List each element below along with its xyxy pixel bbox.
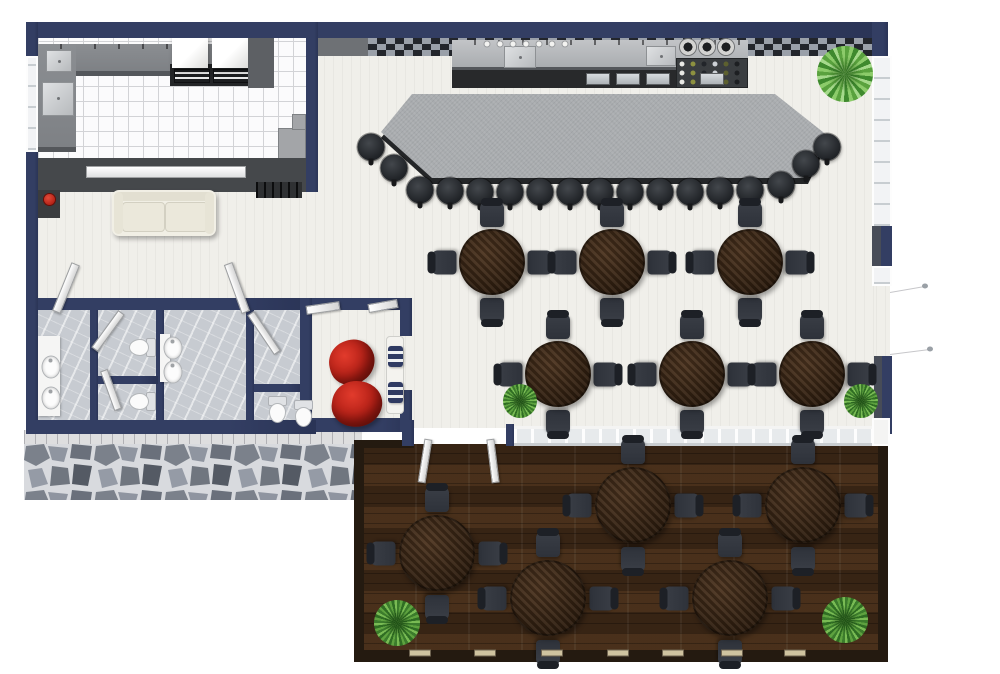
kitchen-left-window [26, 56, 38, 152]
bar-sink-right [646, 46, 676, 66]
dining-chair[interactable] [737, 494, 762, 518]
toilet[interactable] [293, 400, 313, 426]
dining-chair[interactable] [680, 314, 704, 339]
cooler-glass-door [616, 73, 640, 85]
palm-plant[interactable] [817, 46, 873, 102]
stone-path [24, 444, 360, 500]
dining-chair[interactable] [786, 251, 811, 275]
bush-plant[interactable] [374, 600, 420, 646]
dining-chair[interactable] [648, 251, 673, 275]
toilet-bowl [269, 403, 286, 423]
dining-chair[interactable] [482, 587, 507, 611]
dining-table[interactable] [557, 207, 667, 317]
bar-counter[interactable] [378, 92, 830, 180]
bar-stool[interactable] [381, 155, 408, 182]
toilet[interactable] [130, 337, 156, 357]
round-table-top [717, 229, 783, 295]
dining-chair[interactable] [680, 410, 704, 435]
bar-stool[interactable] [768, 172, 795, 199]
bottle [713, 62, 718, 67]
bar-glass [537, 42, 542, 47]
dining-chair[interactable] [690, 251, 715, 275]
dining-chair[interactable] [546, 410, 570, 435]
cooler-glass-door [700, 73, 724, 85]
toilet-bowl [295, 407, 312, 427]
fence-post-cap [474, 650, 496, 657]
bottle [724, 80, 729, 85]
bush-plant[interactable] [822, 597, 868, 643]
dining-chair[interactable] [552, 251, 577, 275]
bar-sink-left [504, 46, 536, 68]
lounge-sofa[interactable] [112, 190, 216, 236]
oven-door-left [174, 69, 210, 83]
dining-chair[interactable] [791, 439, 815, 464]
bar-glass [498, 42, 503, 47]
patio-table[interactable] [578, 450, 688, 560]
dining-chair[interactable] [567, 494, 592, 518]
right-window-upper [872, 56, 892, 228]
bottle [691, 62, 696, 67]
toilet[interactable] [130, 391, 156, 411]
cooler-glass-door [646, 73, 670, 85]
restroom-divider-1 [90, 310, 98, 422]
restroom-sink[interactable] [42, 387, 61, 410]
round-table-top [459, 229, 525, 295]
kitchen-right-wall [306, 22, 318, 192]
patio-table[interactable] [382, 498, 492, 608]
sofa-cushion-left [122, 202, 165, 232]
dining-chair[interactable] [738, 202, 762, 227]
round-table-top [659, 341, 725, 407]
bar-glass [485, 42, 490, 47]
bottle [702, 62, 707, 67]
restroom-divider-3 [246, 310, 254, 422]
dining-chair[interactable] [675, 494, 700, 518]
fire-extinguisher [44, 194, 55, 205]
bar-glass [563, 42, 568, 47]
bar-stool[interactable] [814, 134, 841, 161]
oven-door-right [213, 69, 249, 83]
bottle [680, 62, 685, 67]
round-table-top [579, 229, 645, 295]
undercounter-coolers [452, 70, 676, 88]
patio-fence-right [878, 440, 888, 662]
dining-chair[interactable] [432, 251, 457, 275]
bar-stool[interactable] [707, 178, 734, 205]
entrance-floor-band [876, 286, 890, 356]
bottle [691, 71, 696, 76]
sofa-arm-left [114, 192, 123, 234]
dining-chair[interactable] [845, 494, 870, 518]
sofa-cushion-right [165, 202, 208, 232]
dining-chair[interactable] [791, 547, 815, 572]
bottle [724, 62, 729, 67]
kitchen-counter-end [248, 36, 274, 88]
patio-fence-left [354, 440, 364, 662]
heater-vent [256, 182, 302, 198]
entry-right-wall-upper [400, 298, 412, 336]
window-wall-corner [872, 418, 890, 446]
fence-post-cap [662, 650, 684, 657]
stove-burner [680, 39, 696, 55]
dining-chair[interactable] [536, 532, 560, 557]
door-swing-line [890, 349, 930, 355]
bench-pillow-bottom [388, 382, 403, 403]
kitchen-corner-counter-step [292, 114, 306, 130]
bottle [680, 71, 685, 76]
restroom-top-wall [34, 298, 312, 310]
dining-chair[interactable] [800, 314, 824, 339]
serving-hatch [86, 166, 246, 178]
stove-burner [718, 39, 734, 55]
door-handle [922, 284, 928, 289]
bar-stool[interactable] [358, 134, 385, 161]
bar-glass [550, 42, 555, 47]
right-wall-top [872, 22, 888, 60]
bench-pillow-top [388, 346, 403, 367]
cooler-glass-door [586, 73, 610, 85]
bar-stool[interactable] [407, 177, 434, 204]
dining-chair[interactable] [632, 363, 657, 387]
bar-stool[interactable] [437, 178, 464, 205]
restroom-bottom-wall [26, 420, 316, 434]
toilet-bowl [129, 339, 149, 356]
bar-stool[interactable] [647, 179, 674, 206]
fence-post-cap [607, 650, 629, 657]
bottle [724, 71, 729, 76]
dining-chair[interactable] [480, 298, 504, 323]
dining-table[interactable] [695, 207, 805, 317]
bar-stool[interactable] [557, 179, 584, 206]
dining-chair[interactable] [425, 595, 449, 620]
bush-plant[interactable] [844, 384, 878, 418]
dining-chair[interactable] [621, 547, 645, 572]
door-swing-line [890, 286, 925, 293]
restroom-stub-wall-2 [254, 384, 302, 392]
bottle [735, 80, 740, 85]
dining-chair[interactable] [800, 410, 824, 435]
dining-chair[interactable] [480, 202, 504, 227]
bottle [735, 71, 740, 76]
round-table-top [510, 560, 586, 636]
restroom-sink[interactable] [164, 337, 183, 360]
fence-post-cap [721, 650, 743, 657]
bush-plant[interactable] [503, 384, 537, 418]
round-table-top [399, 515, 475, 591]
floor-plan [0, 0, 1000, 674]
dining-chair[interactable] [590, 587, 615, 611]
bar-glass [524, 42, 529, 47]
restroom-sink[interactable] [164, 361, 183, 384]
kitchen-sink-large [42, 82, 74, 116]
top-wall [26, 22, 888, 38]
fence-post-cap [541, 650, 563, 657]
bar-stool[interactable] [677, 179, 704, 206]
fence-post-cap [784, 650, 806, 657]
dining-table[interactable] [437, 207, 547, 317]
toilet-bowl [129, 393, 149, 410]
patio-table[interactable] [748, 450, 858, 560]
dining-chair[interactable] [718, 532, 742, 557]
dining-chair[interactable] [600, 202, 624, 227]
dining-table[interactable] [637, 319, 747, 429]
dining-chair[interactable] [371, 542, 396, 566]
round-table-top [765, 467, 841, 543]
bar-stool[interactable] [527, 179, 554, 206]
door-handle [927, 347, 933, 352]
bar-glass [511, 42, 516, 47]
sofa-arm-right [205, 192, 214, 234]
round-table-top [779, 341, 845, 407]
toilet[interactable] [267, 396, 287, 422]
bottle [691, 80, 696, 85]
round-table-top [692, 560, 768, 636]
kitchen-corner-counter [278, 128, 306, 162]
right-window-small [872, 266, 892, 286]
dining-chair[interactable] [498, 363, 523, 387]
bottle [680, 80, 685, 85]
patio-door-jamb-left [402, 420, 414, 446]
dining-chair[interactable] [425, 487, 449, 512]
dining-chair[interactable] [594, 363, 619, 387]
round-table-top [595, 467, 671, 543]
kitchen-sink-small [46, 50, 72, 72]
bottle [735, 62, 740, 67]
sofa-back [115, 192, 213, 201]
dining-chair[interactable] [664, 587, 689, 611]
right-wall-mid [872, 226, 892, 268]
dining-chair[interactable] [546, 314, 570, 339]
stove-burner [699, 39, 715, 55]
dining-chair[interactable] [772, 587, 797, 611]
dining-chair[interactable] [848, 363, 873, 387]
dining-chair[interactable] [752, 363, 777, 387]
fence-post-cap [409, 650, 431, 657]
dining-chair[interactable] [621, 439, 645, 464]
restroom-sink[interactable] [42, 356, 61, 379]
